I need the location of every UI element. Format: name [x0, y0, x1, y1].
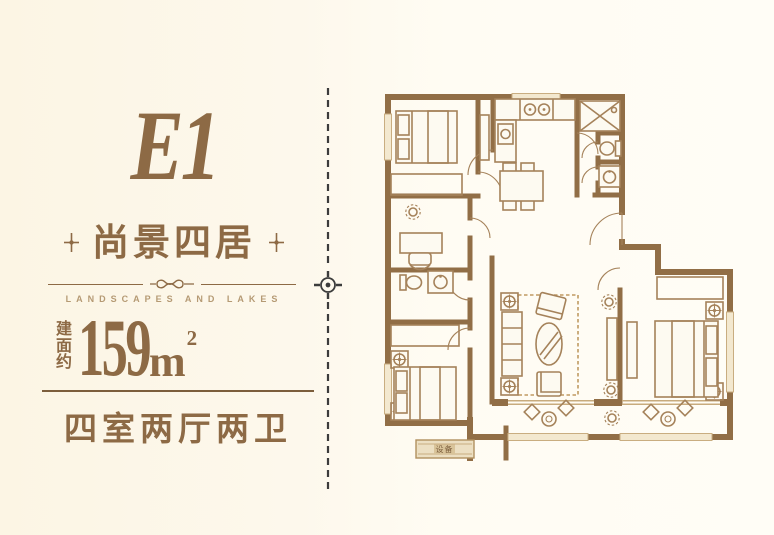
kitchen	[480, 99, 575, 162]
hall-closet	[480, 115, 489, 160]
balcony-chair-icon	[524, 404, 540, 420]
bedroom-top-left	[391, 111, 462, 195]
bedroom-bottom-left	[391, 325, 459, 420]
balcony-chair-icon	[558, 400, 574, 416]
toilet	[407, 276, 422, 289]
platform-label: 设备	[436, 444, 454, 454]
toilet-tank	[400, 275, 406, 290]
toilet-tank	[616, 141, 622, 156]
poster-canvas: { "theme": { "brand_brown": "#8d6a45", "…	[0, 0, 774, 535]
entry-door	[590, 213, 622, 245]
floor-plan: 设备	[0, 0, 774, 535]
tv-cabinet	[607, 318, 617, 380]
balcony-chair-icon	[643, 404, 659, 420]
side-table-lamp-icon	[501, 293, 518, 310]
nightstand-lamp-icon	[391, 351, 408, 368]
equipment-platform: 设备	[416, 440, 474, 458]
sink	[599, 166, 620, 187]
dining-table	[500, 171, 543, 201]
plant-icon	[406, 205, 420, 219]
dining-area	[500, 163, 543, 210]
plant-icon	[604, 383, 618, 397]
bathroom-left	[400, 271, 453, 293]
plant-icon	[605, 411, 619, 425]
desk-chair	[409, 253, 431, 265]
tv-cabinet	[627, 322, 637, 378]
sink	[428, 271, 453, 293]
living-room	[501, 292, 617, 396]
wardrobe	[391, 174, 462, 195]
plant-icon	[602, 295, 616, 309]
balcony-table-icon	[542, 412, 556, 426]
balcony-chair-icon	[677, 400, 693, 416]
side-table-lamp-icon	[501, 378, 518, 395]
master-bedroom	[627, 277, 723, 400]
study	[400, 205, 442, 270]
compass-icon	[314, 271, 342, 299]
wardrobe	[657, 277, 723, 299]
desk	[400, 233, 442, 253]
armchair	[536, 292, 567, 320]
nightstand-lamp-icon	[706, 302, 723, 319]
toilet	[600, 142, 614, 155]
balcony-table-icon	[661, 412, 675, 426]
